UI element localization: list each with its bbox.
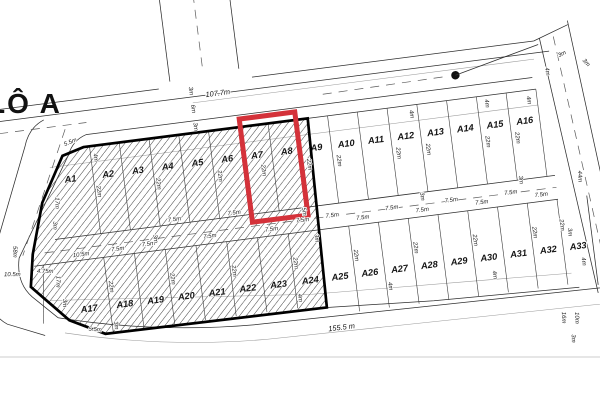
road-line	[155, 0, 170, 82]
dimension-label: 17m	[53, 197, 59, 209]
dimension-label: 3m	[566, 228, 572, 237]
dimension-label: 4m	[296, 293, 303, 302]
dimension-label: 3m	[418, 192, 425, 201]
dimension-label: 7.5m	[385, 205, 399, 213]
dimension-label: 3m	[312, 234, 319, 243]
dimension-label: 3m	[517, 175, 524, 184]
dimension-label: 4.75m	[37, 269, 54, 275]
dimension-label: 3m	[570, 334, 576, 343]
dimension-label: 3m	[51, 221, 57, 229]
dimension-label: 7.5m	[475, 199, 489, 207]
dimension-label: 7.5m	[504, 189, 518, 197]
dimension-label: 4m	[407, 110, 414, 119]
dimension-label: 3m	[61, 299, 67, 308]
block-title: LÔ A	[0, 87, 62, 119]
dimension-label: 3m	[581, 58, 591, 68]
dimension-label: 7.5m	[534, 191, 548, 199]
dimension-label: 7.5m	[444, 197, 458, 205]
dimension-label: 7.5m	[356, 214, 370, 222]
dimension-label: 16m	[560, 312, 566, 324]
cadastral-map: A1A2A3A4A5A6A7A8A9A10A11A12A13A14A15A16A…	[0, 0, 600, 400]
dimension-label: 58m	[11, 246, 17, 258]
survey-point-marker	[451, 71, 460, 80]
dimension-label: 3m	[191, 122, 198, 131]
dimension-label: 7.5m	[415, 207, 429, 215]
dimension-label: 7.5m	[325, 212, 339, 220]
road-line	[225, 0, 239, 69]
cadastral-map-page: A1A2A3A4A5A6A7A8A9A10A11A12A13A14A15A16A…	[0, 0, 600, 400]
dimension-label: 5.5m	[88, 327, 102, 334]
dimension-label: 17m	[54, 276, 60, 288]
dimension-label: 3m	[151, 234, 158, 243]
dimension-label: 3m	[187, 87, 194, 96]
dimension-label: 107.7m	[205, 87, 231, 99]
dimension-label: 4m	[525, 96, 532, 105]
dimension-label: 5.5m	[63, 137, 78, 147]
road-centerline	[322, 76, 447, 94]
dimension-label: 4m	[491, 270, 498, 279]
dimension-label: 10.5m	[4, 272, 21, 278]
dimension-label: 6m	[189, 104, 196, 113]
dimension-label: 4m	[386, 282, 393, 291]
dimension-label: 4m	[580, 257, 587, 266]
dimension-label: 3m	[557, 50, 567, 59]
dimension-label: 155.5 m	[328, 321, 356, 333]
dimension-label: 10m	[573, 312, 579, 324]
road-line	[252, 41, 534, 77]
dimension-label: 3m	[112, 321, 119, 330]
dimension-label: 4m	[483, 99, 490, 108]
dimension-label: 4m	[91, 153, 98, 162]
dimension-label: 44m	[576, 170, 582, 182]
dimension-label: 4m	[543, 67, 550, 76]
road-centerline	[189, 0, 203, 69]
dimension-label: 5m	[300, 207, 307, 216]
road-line	[532, 25, 569, 41]
